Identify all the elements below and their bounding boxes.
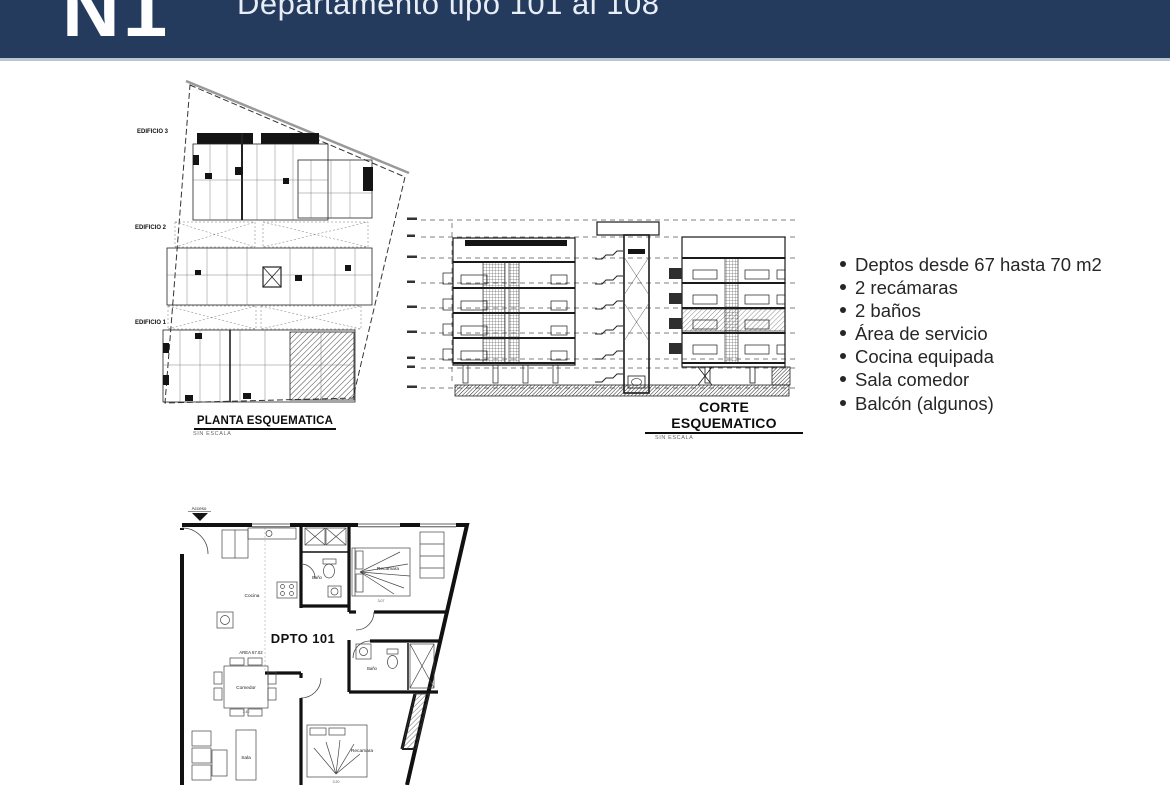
dim-comedor: 3.40 (243, 710, 250, 714)
section-right-building (669, 237, 785, 385)
unit-area: AREA 67.02 (239, 650, 263, 655)
feature-text: Cocina equipada (855, 348, 994, 367)
edificio-1-block (163, 330, 355, 402)
room-label-comedor: Comedor (236, 685, 256, 691)
dim-recamara1: 3.07 (378, 599, 385, 603)
planta-esquematica-drawing: EDIFICIO 3 EDIFICIO 2 EDIFICIO 1 (135, 75, 435, 425)
patio-band-a (175, 222, 368, 247)
lot-boundary (165, 81, 409, 403)
corte-caption-scale: SIN ESCALA (655, 435, 803, 441)
corte-caption-text: CORTE ESQUEMATICO (645, 399, 803, 434)
interior-walls (265, 525, 448, 785)
room-label-bano2: Baño (367, 666, 377, 671)
bullet-icon (840, 353, 846, 359)
edificio-3-label: EDIFICIO 3 (137, 129, 169, 135)
living-furniture (192, 730, 256, 780)
room-label-recamara1: Recamara (377, 566, 399, 572)
feature-item: Sala comedor (840, 371, 1102, 390)
kitchen-fixtures (217, 528, 297, 628)
section-ground (455, 367, 790, 396)
feature-item: Balcón (algunos) (840, 395, 1102, 414)
patio-band-b (168, 306, 361, 329)
room-label-bano1: Baño (312, 575, 322, 580)
edificio-1-label: EDIFICIO 1 (135, 320, 167, 326)
section-elevator-tower (597, 222, 659, 393)
bullet-icon (840, 376, 846, 382)
features-list: Deptos desde 67 hasta 70 m2 2 recámaras … (840, 256, 1102, 418)
balcony-hatch (402, 694, 429, 749)
dpto-101-floorplan: Acceso (168, 502, 478, 785)
room-label-cocina: Cocina (245, 593, 260, 599)
feature-text: 2 recámaras (855, 279, 958, 298)
bullet-icon (840, 284, 846, 290)
feature-text: 2 baños (855, 302, 921, 321)
section-stairs (595, 251, 623, 382)
room-label-recamara2: Recamara (351, 748, 373, 754)
feature-text: Sala comedor (855, 371, 969, 390)
unit-title: DPTO 101 (271, 631, 335, 646)
bullet-icon (840, 400, 846, 406)
feature-text: Deptos desde 67 hasta 70 m2 (855, 256, 1102, 275)
bullet-icon (840, 307, 846, 313)
access-arrow-icon: Acceso (188, 506, 211, 521)
feature-item: Cocina equipada (840, 348, 1102, 367)
planta-caption-text: PLANTA ESQUEMATICA (194, 415, 336, 430)
feature-item: 2 baños (840, 302, 1102, 321)
level-marker (407, 218, 417, 389)
planta-caption: PLANTA ESQUEMATICA SIN ESCALA (183, 415, 347, 437)
access-label: Acceso (192, 506, 207, 511)
slide: N1 Departamento tipo 101 al 108 (0, 0, 1170, 785)
slide-title: Departamento tipo 101 al 108 (237, 0, 659, 19)
bathroom1-fixtures (323, 559, 341, 597)
bedroom1-furniture (352, 532, 444, 596)
planta-caption-scale: SIN ESCALA (193, 431, 347, 437)
feature-item: Área de servicio (840, 325, 1102, 344)
corte-caption: CORTE ESQUEMATICO SIN ESCALA (645, 399, 803, 441)
header-bar: N1 Departamento tipo 101 al 108 (0, 0, 1170, 61)
closet-boxes (305, 528, 346, 545)
dim-recamara2: 3.20 (333, 780, 340, 784)
feature-item: 2 recámaras (840, 279, 1102, 298)
feature-text: Área de servicio (855, 325, 988, 344)
section-left-building (443, 238, 575, 383)
bullet-icon (840, 261, 846, 267)
corte-esquematico-drawing (405, 195, 805, 410)
feature-text: Balcón (algunos) (855, 395, 994, 414)
logo-n1: N1 (62, 0, 170, 49)
edificio-2-label: EDIFICIO 2 (135, 225, 167, 231)
feature-item: Deptos desde 67 hasta 70 m2 (840, 256, 1102, 275)
bullet-icon (840, 330, 846, 336)
edificio-2-block (167, 248, 372, 305)
room-label-sala: Sala (241, 755, 251, 761)
